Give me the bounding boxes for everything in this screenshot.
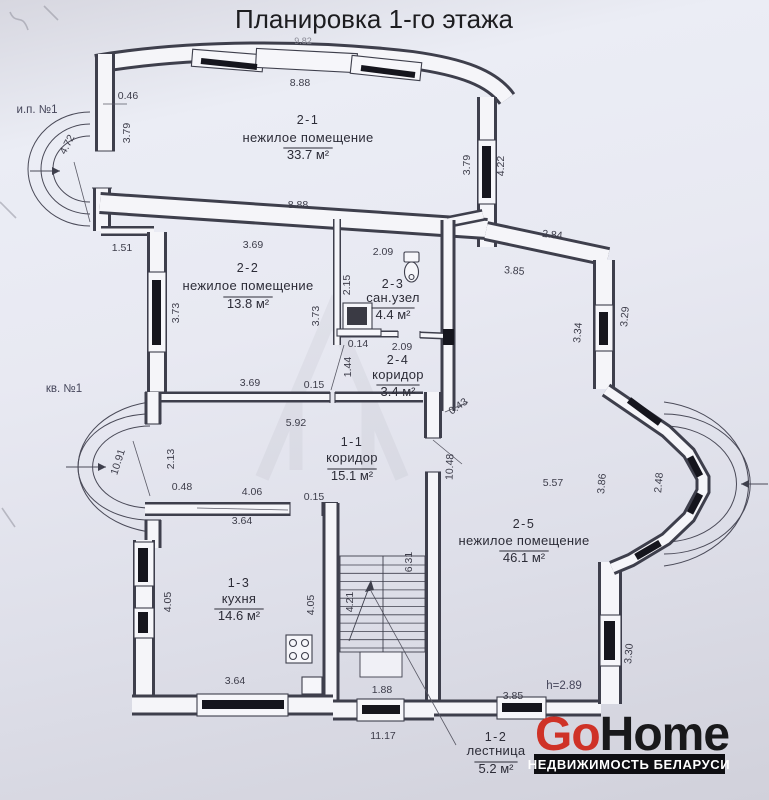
room-number: 2-4 bbox=[387, 353, 410, 367]
dimension-label: 0.15 bbox=[304, 491, 325, 503]
dimension-label: 4.72 bbox=[57, 133, 77, 157]
room-name: коридор bbox=[372, 367, 424, 382]
dimension-label: 0.14 bbox=[348, 338, 369, 350]
dimension-label: 0.15 bbox=[304, 379, 325, 391]
bay-dim-arrow bbox=[52, 167, 60, 175]
logo-tagline: НЕДВИЖИМОСТЬ БЕЛАРУСИ bbox=[528, 757, 731, 772]
room-number: 2-1 bbox=[297, 113, 320, 127]
stove-burner bbox=[290, 653, 297, 660]
dimension-label: 0.48 bbox=[172, 481, 193, 493]
dimension-label: 3.34 bbox=[571, 322, 585, 344]
room-area: 14.6 м² bbox=[218, 608, 261, 623]
dimension-label: 3.79 bbox=[121, 123, 133, 144]
bay-arc bbox=[28, 112, 90, 226]
scribble bbox=[10, 12, 28, 30]
room-area: 3.4 м² bbox=[381, 384, 417, 399]
room-number: 1-1 bbox=[341, 435, 364, 449]
scribble bbox=[44, 6, 58, 20]
dimension-label: 3.85 bbox=[504, 264, 526, 278]
room-name: кухня bbox=[222, 591, 257, 606]
bay-dim-arrow bbox=[741, 480, 749, 488]
logo-go: Go bbox=[535, 708, 600, 761]
dimension-label: 2.48 bbox=[652, 472, 666, 494]
room-number: 2-2 bbox=[237, 261, 260, 275]
plot-label-top: и.п. №1 bbox=[17, 104, 58, 116]
dimension-label: 0.46 bbox=[118, 90, 139, 102]
dimension-label: 3.29 bbox=[618, 306, 632, 328]
dimension-label: 3.85 bbox=[503, 690, 524, 702]
stove-burner bbox=[302, 640, 309, 647]
page-title: Планировка 1-го этажа bbox=[235, 4, 513, 34]
window bbox=[599, 312, 608, 345]
stove-burner bbox=[302, 653, 309, 660]
scribble bbox=[0, 202, 16, 218]
dimension-label: 1.51 bbox=[112, 242, 133, 254]
entry-door bbox=[443, 329, 454, 345]
gohome-wordmark: GoHome bbox=[535, 708, 729, 761]
toilet-icon bbox=[409, 275, 414, 280]
room-number: 2-3 bbox=[382, 277, 405, 291]
window bbox=[362, 705, 400, 714]
dimension-label: 3.79 bbox=[461, 155, 473, 176]
window bbox=[202, 700, 284, 709]
dimension-label: 10.91 bbox=[108, 448, 128, 477]
room-area: 33.7 м² bbox=[287, 147, 330, 162]
dimension-label: 4.05 bbox=[305, 595, 317, 616]
dimension-label: 2.13 bbox=[165, 449, 177, 470]
toilet-icon bbox=[404, 252, 419, 262]
pencil-marks bbox=[0, 6, 58, 527]
leader-line bbox=[133, 441, 150, 496]
room-area: 13.8 м² bbox=[227, 296, 270, 311]
dimension-label: 5.57 bbox=[543, 477, 564, 489]
sink-icon bbox=[347, 307, 367, 325]
dimension-label: 3.30 bbox=[622, 643, 636, 665]
room-name: нежилое помещение bbox=[458, 533, 589, 548]
dimension-label: 11.17 bbox=[370, 730, 396, 742]
dimension-label: 4.22 bbox=[495, 156, 507, 177]
dimension-label: 3.64 bbox=[232, 515, 253, 527]
counter bbox=[337, 329, 381, 336]
dimension-label: 2.09 bbox=[392, 341, 413, 353]
dimension-label: 8.88 bbox=[288, 199, 309, 211]
ceiling-height-label: h=2.89 bbox=[546, 680, 582, 692]
staircase bbox=[340, 556, 425, 677]
dimension-label: 3.64 bbox=[225, 675, 246, 687]
dimension-label: 4.06 bbox=[242, 486, 263, 498]
dimension-label: 6.31 bbox=[403, 552, 415, 573]
bay-windows bbox=[28, 112, 768, 566]
dimension-label: 4.21 bbox=[344, 592, 356, 613]
window bbox=[138, 548, 148, 582]
dimension-label: 3.69 bbox=[243, 239, 264, 251]
window bbox=[604, 621, 615, 660]
room-area: 46.1 м² bbox=[503, 550, 546, 565]
wall-inner bbox=[420, 335, 445, 336]
stairs-landing bbox=[360, 652, 402, 677]
room-area: 15.1 м² bbox=[331, 468, 374, 483]
room-number: 1-3 bbox=[228, 576, 251, 590]
room-area: 4.4 м² bbox=[376, 307, 412, 322]
room-name: лестница bbox=[467, 743, 526, 758]
window bbox=[138, 612, 148, 633]
room-number: 2-5 bbox=[513, 517, 536, 531]
dimension-label: 3.73 bbox=[170, 303, 182, 324]
plot-label-left: кв. №1 bbox=[46, 383, 82, 395]
room-name: коридор bbox=[326, 450, 378, 465]
dimension-label: 1.44 bbox=[342, 357, 354, 378]
window bbox=[152, 280, 161, 345]
dimension-label: 2.09 bbox=[373, 246, 394, 258]
floor-plan-svg: Планировка 1-го этажа bbox=[0, 0, 769, 800]
dimension-label: 4.05 bbox=[162, 592, 174, 613]
room-name: нежилое помещение bbox=[242, 130, 373, 145]
floor-plan-photo: Планировка 1-го этажа bbox=[0, 0, 769, 800]
scribble bbox=[2, 508, 15, 527]
dimension-label: 3.86 bbox=[595, 473, 609, 495]
dimension-label: 8.88 bbox=[290, 77, 311, 89]
window bbox=[482, 146, 491, 198]
room-area: 5.2 м² bbox=[479, 761, 515, 776]
room-number: 1-2 bbox=[485, 730, 508, 744]
room-name: сан.узел bbox=[366, 290, 420, 305]
dimension-label: 5.92 bbox=[286, 417, 307, 429]
dimension-label: 2.84 bbox=[542, 228, 564, 242]
dimension-label: 2.15 bbox=[341, 275, 353, 296]
stove-icon bbox=[286, 635, 312, 663]
dimension-label: 3.69 bbox=[240, 377, 261, 389]
dimension-label: 3.73 bbox=[310, 306, 322, 327]
dimension-label: 9.82 bbox=[294, 36, 312, 46]
gohome-logo: GoHome НЕДВИЖИМОСТЬ БЕЛАРУСИ bbox=[528, 708, 731, 774]
logo-home: Home bbox=[600, 708, 730, 761]
stove-burner bbox=[290, 640, 297, 647]
duct bbox=[302, 677, 322, 694]
dimension-label: 10.48 bbox=[444, 453, 457, 480]
dimension-label: 1.88 bbox=[372, 684, 393, 696]
bay-dim-arrow bbox=[98, 463, 106, 471]
room-name: нежилое помещение bbox=[182, 278, 313, 293]
